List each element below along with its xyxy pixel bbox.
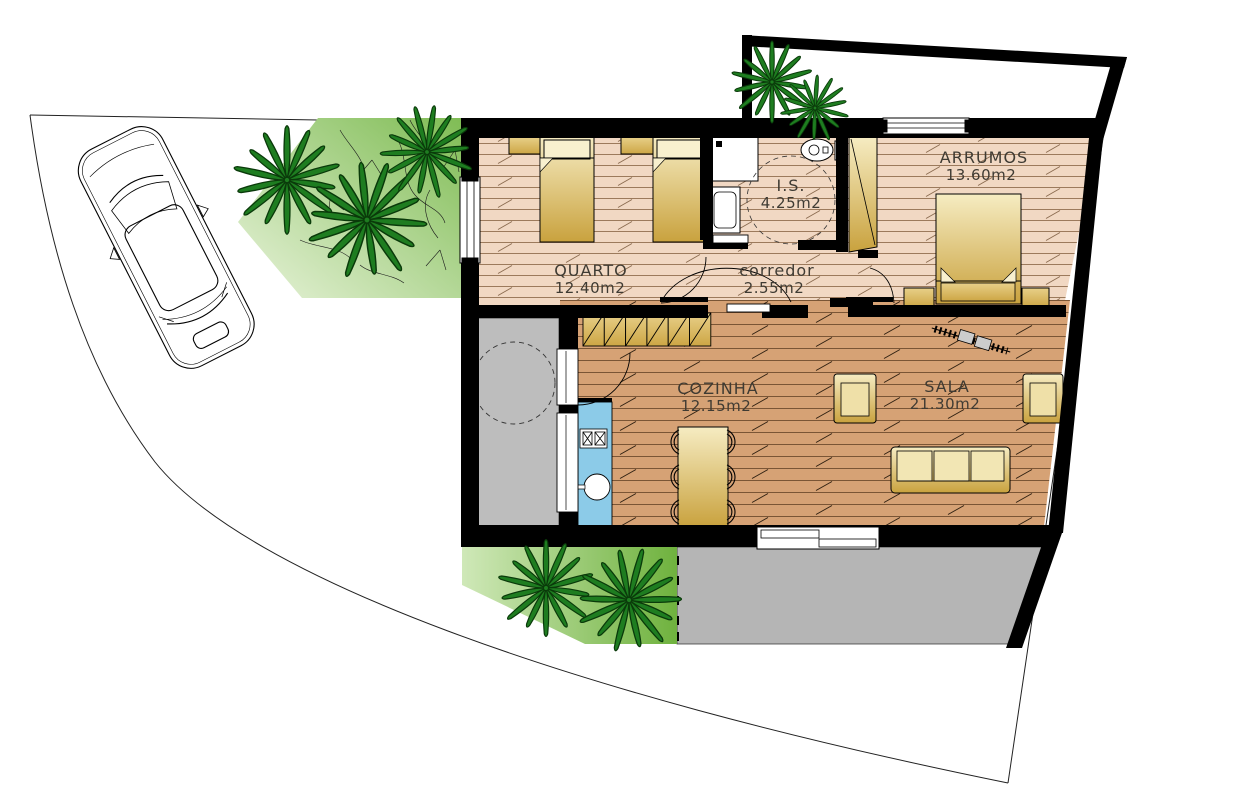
door-threshold [846, 297, 893, 302]
plot-boundary-top-line [30, 115, 318, 120]
floor-plan-page: QUARTO 12.40m2 I.S. 4.25m2 corredor 2.55… [0, 0, 1257, 793]
sofa [891, 447, 1010, 493]
room-label-corredor: corredor [739, 261, 814, 280]
dining-table-set [671, 427, 735, 527]
door-threshold [660, 297, 708, 302]
wall-wardrobe-bottom [858, 250, 878, 258]
window-quarto-west [460, 177, 480, 263]
washbasin [710, 187, 740, 233]
dining-table [678, 427, 728, 527]
wardrobe [849, 137, 877, 252]
room-area-arrumos: 13.60m2 [946, 166, 1017, 184]
car-top-view [62, 114, 270, 380]
wall-quarto-bathroom [700, 120, 713, 240]
room-label-quarto: QUARTO [554, 261, 628, 280]
patio-room [466, 318, 559, 527]
armchair [834, 374, 876, 423]
sliding-door-sala-south [757, 527, 879, 549]
wall-interior-corridor-a [463, 305, 708, 318]
nightstand [1022, 288, 1049, 307]
window-arrumos-north [883, 118, 969, 134]
room-area-sala: 21.30m2 [910, 395, 981, 413]
back-garden [462, 547, 677, 644]
wall-bathroom-bottom-b [798, 240, 843, 250]
double-bed [936, 194, 1021, 304]
room-area-cozinha: 12.15m2 [681, 397, 752, 415]
single-bed [653, 136, 706, 242]
armchair [1023, 374, 1063, 423]
nightstand [904, 288, 934, 307]
back-garden-lawn [462, 547, 677, 644]
room-label-arrumos: ARRUMOS [940, 148, 1028, 167]
wall-bathroom-wardrobe [836, 120, 848, 252]
cooktop [580, 429, 607, 448]
room-area-quarto: 12.40m2 [555, 279, 626, 297]
shower-drain [716, 141, 722, 147]
kitchen-counter [578, 402, 612, 527]
nightstand [509, 137, 542, 154]
room-area-is: 4.25m2 [761, 194, 822, 212]
single-bed [540, 136, 594, 242]
room-area-corredor: 2.55m2 [744, 279, 805, 297]
floor-plan-canvas: QUARTO 12.40m2 I.S. 4.25m2 corredor 2.55… [0, 0, 1257, 793]
room-label-cozinha: COZINHA [677, 379, 758, 398]
room-label-sala: SALA [924, 377, 970, 396]
wall-top [463, 118, 1107, 138]
nightstand [621, 137, 654, 154]
room-label-is: I.S. [776, 176, 805, 195]
terrace [668, 547, 1050, 644]
terrace-slab [677, 547, 1050, 644]
wall-interior-corridor-c [848, 305, 1066, 317]
